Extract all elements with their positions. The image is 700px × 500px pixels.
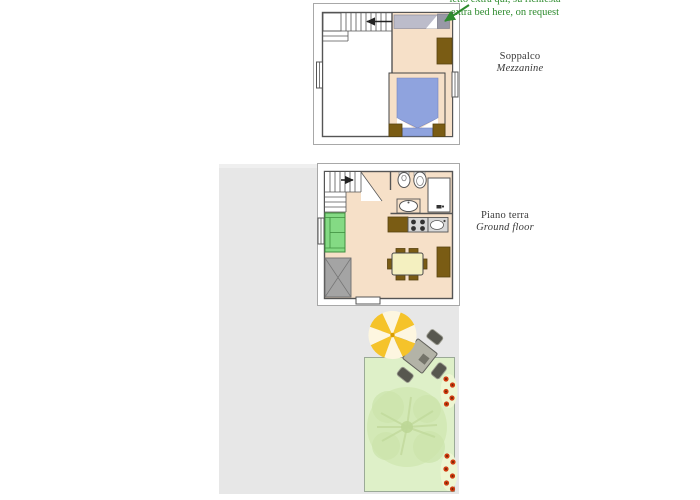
- entrance-door: [356, 297, 380, 304]
- ground-floor-label: Piano terra Ground floor: [452, 210, 558, 233]
- ground-floor-plan: [318, 164, 460, 306]
- sofa: [325, 213, 345, 252]
- ground-window-left: [318, 218, 324, 244]
- nightstand: [389, 124, 402, 137]
- double-bed: [389, 73, 445, 137]
- ground-wardrobe: [437, 247, 450, 277]
- mezzanine-label-en: Mezzanine: [465, 63, 575, 75]
- annotation-line-en: extra bed here, on request: [420, 6, 590, 19]
- mezzanine-label: Soppalco Mezzanine: [465, 51, 575, 74]
- bidet: [398, 173, 410, 188]
- dining-set: [388, 249, 428, 281]
- entry-area: [325, 258, 351, 297]
- mezzanine-wardrobe: [437, 38, 452, 64]
- kitchen-cabinet: [388, 217, 408, 232]
- garden-tree: [367, 387, 447, 467]
- mezzanine-label-it: Soppalco: [465, 51, 575, 63]
- nightstand: [433, 124, 445, 137]
- mezzanine-plan: [314, 4, 460, 145]
- ground-floor-label-en: Ground floor: [452, 222, 558, 234]
- extra-bed-annotation: letto extra qui, su richiesta extra bed …: [420, 0, 590, 19]
- floorplan-canvas: letto extra qui, su richiesta extra bed …: [0, 0, 700, 500]
- bed-pillow: [403, 128, 433, 136]
- bed-blanket: [397, 78, 438, 128]
- dining-table: [392, 253, 423, 275]
- mezzanine-window-right: [452, 72, 458, 97]
- ground-floor-label-it: Piano terra: [452, 210, 558, 222]
- floorplan-drawing: [0, 0, 700, 500]
- shower-tap: [437, 205, 442, 209]
- mezzanine-window-left: [317, 62, 323, 88]
- kitchenette: [388, 217, 448, 232]
- hob: [408, 218, 428, 233]
- flower-border-top: [441, 374, 458, 408]
